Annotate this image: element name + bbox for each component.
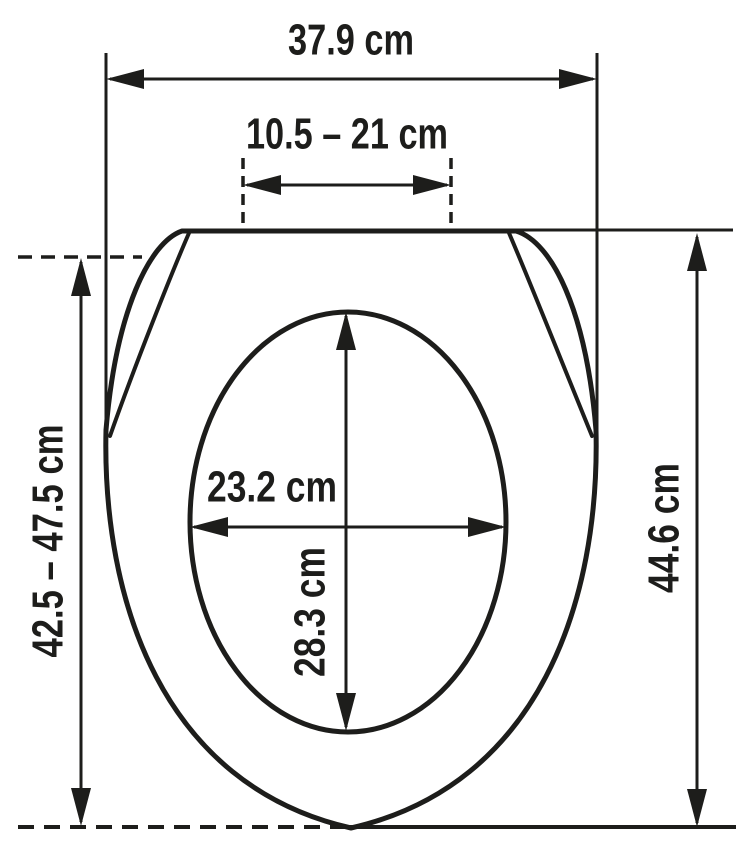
hinge-spacing-dimension: 10.5 – 21 cm <box>243 110 451 231</box>
length-range-label: 42.5 – 47.5 cm <box>24 425 73 658</box>
inner-depth-dimension: 28.3 cm <box>286 312 357 731</box>
seat-inner-opening <box>190 312 506 732</box>
toilet-seat-drawing <box>106 231 596 828</box>
inner-depth-label: 28.3 cm <box>286 547 335 677</box>
arrow-right-icon <box>413 175 451 195</box>
dimension-diagram: 37.9 cm 10.5 – 21 cm 23.2 cm 28.3 cm <box>0 0 751 850</box>
overall-length-label: 44.6 cm <box>640 463 689 593</box>
arrow-up-icon <box>687 233 707 271</box>
outer-width-label: 37.9 cm <box>288 16 414 65</box>
arrow-left-icon <box>106 69 144 89</box>
overall-length-dimension: 44.6 cm <box>516 230 733 827</box>
arrow-right-icon <box>559 69 597 89</box>
arrow-down-icon <box>71 788 91 826</box>
inner-width-label: 23.2 cm <box>207 463 337 512</box>
arrow-up-icon <box>71 258 91 296</box>
toilet-seat-diagram-canvas: 37.9 cm 10.5 – 21 cm 23.2 cm 28.3 cm <box>0 0 751 850</box>
arrow-down-icon <box>336 693 356 731</box>
arrow-left-icon <box>190 517 228 537</box>
length-range-dimension: 42.5 – 47.5 cm <box>18 257 142 826</box>
hinge-spacing-label: 10.5 – 21 cm <box>246 110 448 159</box>
arrow-down-icon <box>687 789 707 827</box>
seat-outer-outline <box>106 231 596 828</box>
inner-width-dimension: 23.2 cm <box>190 463 506 538</box>
arrow-up-icon <box>336 312 356 350</box>
arrow-right-icon <box>468 517 506 537</box>
arrow-left-icon <box>243 175 281 195</box>
